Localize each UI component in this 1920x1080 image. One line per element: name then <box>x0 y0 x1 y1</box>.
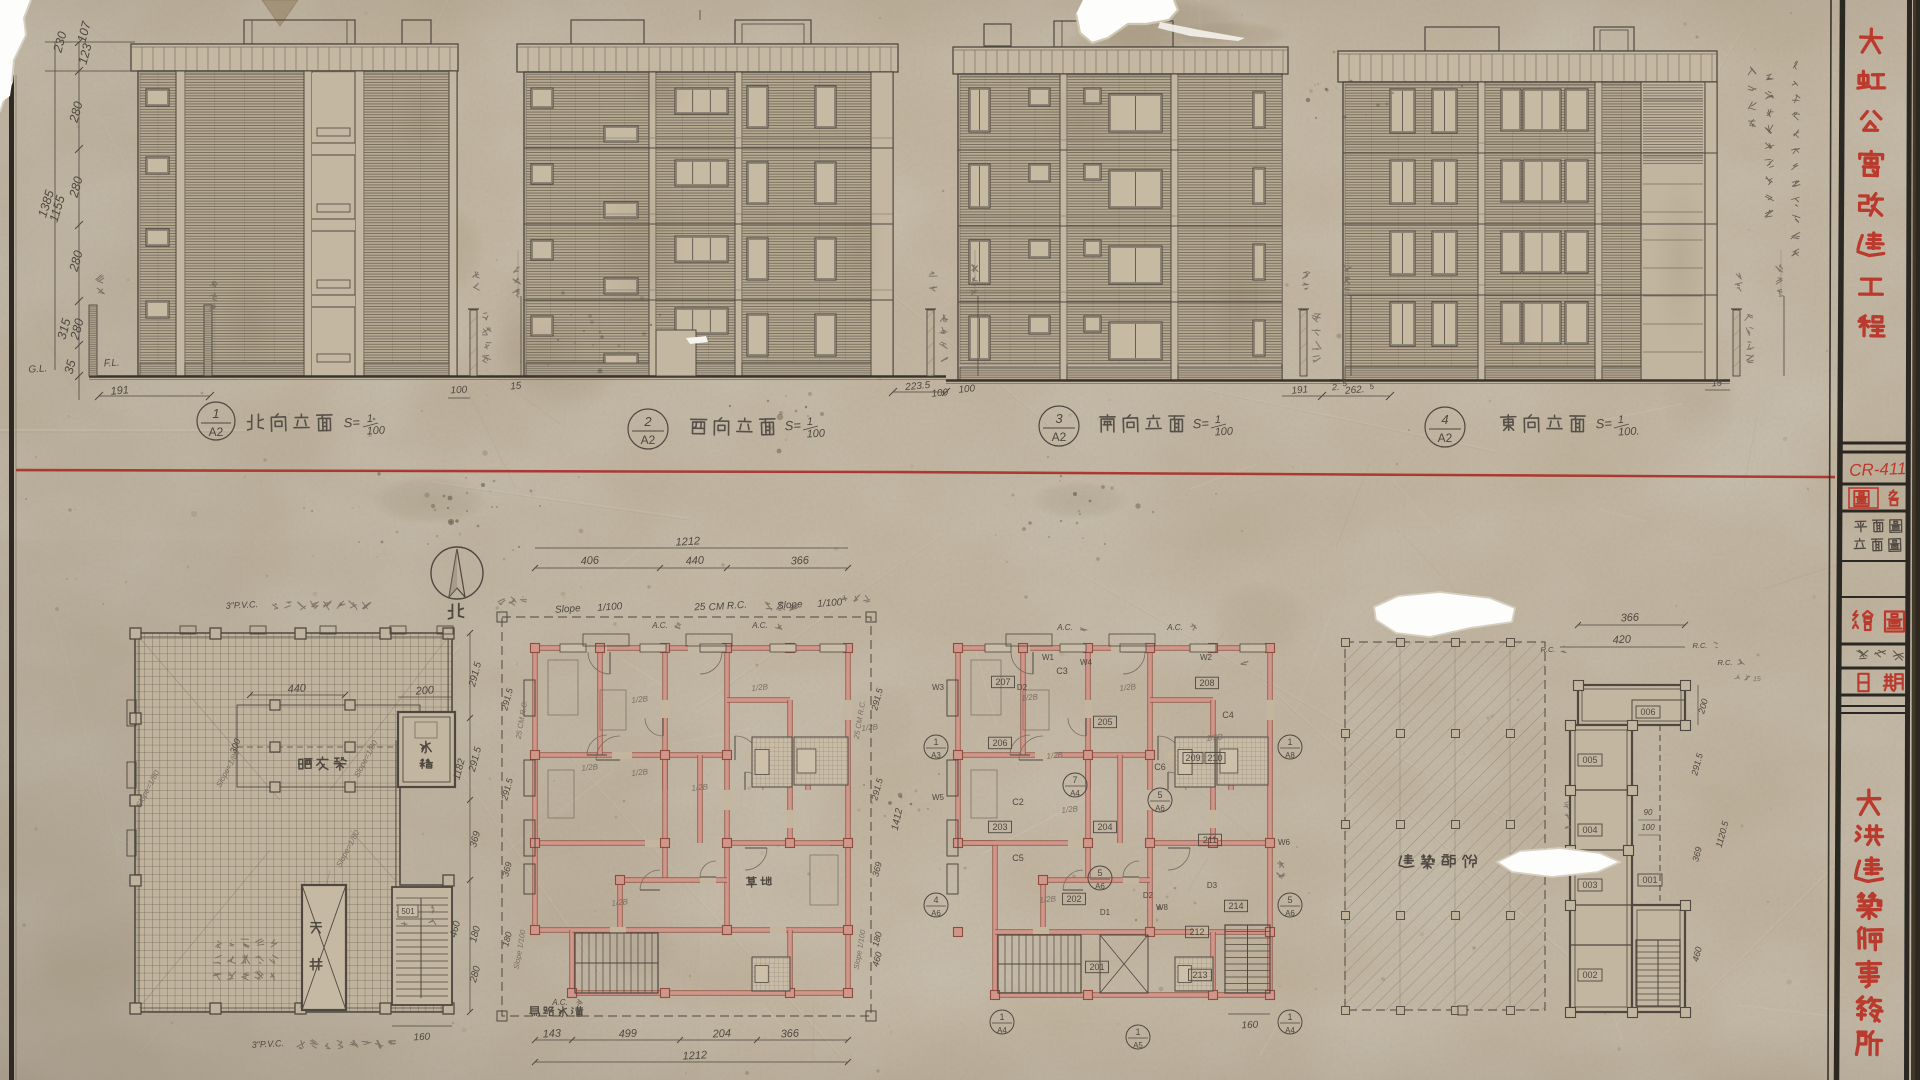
svg-text:1: 1 <box>1617 414 1624 426</box>
svg-text:200: 200 <box>414 684 435 697</box>
svg-text:203: 203 <box>992 822 1007 832</box>
svg-text:1212: 1212 <box>682 1049 707 1062</box>
svg-text:A2: A2 <box>1052 430 1067 444</box>
svg-text:W5: W5 <box>932 793 945 802</box>
svg-text:W6: W6 <box>1278 838 1291 847</box>
svg-text:A.C.: A.C. <box>551 998 568 1007</box>
svg-text:223.5: 223.5 <box>904 380 931 393</box>
svg-text:15: 15 <box>1753 676 1761 683</box>
svg-text:W2: W2 <box>1200 653 1213 662</box>
svg-text:202: 202 <box>1066 894 1081 904</box>
svg-text:A2: A2 <box>1438 431 1453 445</box>
svg-text:1: 1 <box>1287 737 1292 747</box>
svg-text:Slope: Slope <box>555 603 582 616</box>
svg-text:366: 366 <box>1620 611 1640 624</box>
svg-text:204: 204 <box>711 1028 731 1041</box>
svg-text:201: 201 <box>1089 962 1104 972</box>
svg-text:1/2B: 1/2B <box>1061 804 1079 815</box>
svg-text:004: 004 <box>1582 825 1597 835</box>
svg-text:160: 160 <box>1241 1020 1259 1032</box>
svg-text:S=: S= <box>784 418 801 434</box>
svg-text:R.C.: R.C. <box>1693 641 1708 650</box>
svg-text:143: 143 <box>542 1027 562 1040</box>
svg-text:211: 211 <box>1203 835 1217 845</box>
svg-text:006: 006 <box>1640 707 1655 717</box>
svg-text:1/2B: 1/2B <box>861 722 879 733</box>
svg-text:207: 207 <box>995 677 1010 687</box>
svg-text:C5: C5 <box>1012 853 1024 863</box>
svg-text:1: 1 <box>1214 414 1221 426</box>
svg-text:A.C.: A.C. <box>1166 623 1183 632</box>
svg-text:406: 406 <box>580 554 600 567</box>
svg-text:1212: 1212 <box>675 535 700 548</box>
svg-text:1/2B: 1/2B <box>691 782 709 793</box>
svg-text:D1: D1 <box>1100 908 1111 917</box>
svg-text:W8: W8 <box>1156 903 1169 912</box>
svg-text:100.: 100. <box>1618 425 1640 438</box>
svg-text:A.C.: A.C. <box>651 621 668 630</box>
svg-text:15: 15 <box>1711 378 1723 389</box>
svg-text:4: 4 <box>1441 412 1448 427</box>
svg-text:A6: A6 <box>1095 882 1105 891</box>
svg-text:G.L.: G.L. <box>28 363 48 375</box>
svg-text:A4: A4 <box>997 1026 1007 1035</box>
svg-text:1/2B: 1/2B <box>1119 682 1137 693</box>
svg-text:100: 100 <box>958 383 976 395</box>
svg-text:1/2B: 1/2B <box>1039 894 1057 905</box>
svg-text:A3: A3 <box>931 751 941 760</box>
svg-text:C3: C3 <box>1056 666 1068 676</box>
svg-text:1/2B: 1/2B <box>581 762 599 773</box>
svg-text:S=: S= <box>343 415 360 431</box>
svg-text:D3: D3 <box>1207 881 1218 890</box>
svg-text:1/2B: 1/2B <box>1021 692 1039 703</box>
svg-text:100: 100 <box>1214 425 1234 438</box>
svg-text:A6: A6 <box>1285 909 1295 918</box>
svg-text:S=: S= <box>1192 416 1209 432</box>
svg-text:208: 208 <box>1199 678 1214 688</box>
svg-text:R.C.: R.C. <box>1541 645 1556 654</box>
svg-text:100: 100 <box>450 385 468 397</box>
svg-text:W3: W3 <box>932 683 945 692</box>
svg-text:1: 1 <box>806 416 813 428</box>
svg-text:W4: W4 <box>1080 658 1093 667</box>
svg-text:213: 213 <box>1192 970 1207 980</box>
svg-text:D2: D2 <box>1143 891 1154 900</box>
svg-text:A.C.: A.C. <box>1056 623 1073 632</box>
svg-text:S=: S= <box>1595 416 1612 432</box>
svg-text:003: 003 <box>1582 880 1597 890</box>
svg-text:A8: A8 <box>1285 751 1295 760</box>
svg-text:100: 100 <box>931 387 949 399</box>
svg-text:002: 002 <box>1582 970 1597 980</box>
svg-text:1/2B: 1/2B <box>1206 732 1224 743</box>
svg-text:100: 100 <box>806 427 826 440</box>
svg-text:1/100: 1/100 <box>817 597 843 610</box>
svg-text:5: 5 <box>1097 868 1102 878</box>
svg-text:420: 420 <box>1612 633 1632 646</box>
svg-text:210: 210 <box>1207 753 1222 763</box>
svg-text:A4: A4 <box>1070 789 1080 798</box>
svg-text:7: 7 <box>1072 775 1077 785</box>
svg-text:209: 209 <box>1185 753 1200 763</box>
svg-text:A2: A2 <box>641 433 656 447</box>
svg-text:160: 160 <box>413 1032 431 1044</box>
svg-text:1/2B: 1/2B <box>631 767 649 778</box>
svg-text:1: 1 <box>366 413 373 425</box>
svg-text:214: 214 <box>1228 901 1243 911</box>
svg-text:191: 191 <box>1291 384 1309 396</box>
svg-text:A4: A4 <box>1285 1026 1295 1035</box>
svg-text:206: 206 <box>992 738 1007 748</box>
svg-text:440: 440 <box>287 682 307 695</box>
svg-text:1: 1 <box>212 406 219 421</box>
svg-text:100: 100 <box>1641 823 1655 832</box>
svg-text:5: 5 <box>1287 895 1292 905</box>
svg-text:D2: D2 <box>1017 683 1028 692</box>
svg-text:A2: A2 <box>209 425 224 439</box>
svg-text:1/2B: 1/2B <box>631 694 649 705</box>
svg-text:366: 366 <box>790 554 810 567</box>
svg-text:A6: A6 <box>931 909 941 918</box>
svg-text:1/2B: 1/2B <box>1046 750 1064 761</box>
svg-text:212: 212 <box>1189 927 1204 937</box>
svg-text:2.: 2. <box>1331 382 1340 393</box>
svg-text:C2: C2 <box>1012 797 1024 807</box>
svg-text:CR-411: CR-411 <box>1849 459 1907 480</box>
svg-text:R.C.: R.C. <box>1718 658 1733 667</box>
svg-text:3"P.V.C.: 3"P.V.C. <box>251 1038 284 1050</box>
svg-text:Slope: Slope <box>777 599 804 612</box>
svg-text:A5: A5 <box>1133 1041 1143 1050</box>
svg-text:2: 2 <box>643 414 652 429</box>
svg-text:1/2B: 1/2B <box>611 897 629 908</box>
svg-text:4: 4 <box>933 895 938 905</box>
svg-text:205: 205 <box>1097 717 1112 727</box>
svg-text:191: 191 <box>110 384 129 398</box>
svg-text:499: 499 <box>618 1028 637 1041</box>
svg-text:005: 005 <box>1582 755 1597 765</box>
svg-text:A6: A6 <box>1155 804 1165 813</box>
svg-text:A.C.: A.C. <box>751 621 768 630</box>
svg-text:3"P.V.C.: 3"P.V.C. <box>225 599 258 611</box>
svg-text:501: 501 <box>401 907 415 916</box>
svg-text:1: 1 <box>933 737 938 747</box>
svg-text:5: 5 <box>1157 790 1162 800</box>
svg-text:1: 1 <box>1287 1012 1292 1022</box>
svg-text:W1: W1 <box>1042 653 1055 662</box>
svg-text:100: 100 <box>366 424 386 437</box>
svg-text:440: 440 <box>685 554 705 567</box>
svg-text:25: 25 <box>693 602 706 614</box>
svg-text:1: 1 <box>1135 1027 1140 1037</box>
svg-text:366: 366 <box>780 1027 800 1040</box>
svg-text:C6: C6 <box>1154 762 1166 772</box>
svg-text:204: 204 <box>1097 822 1112 832</box>
svg-text:1/2B: 1/2B <box>751 682 769 693</box>
svg-text:3: 3 <box>1055 411 1063 426</box>
svg-text:F.L.: F.L. <box>103 357 120 369</box>
svg-text:1: 1 <box>999 1012 1004 1022</box>
svg-text:90: 90 <box>1644 808 1653 817</box>
svg-text:001: 001 <box>1642 875 1657 885</box>
svg-text:C4: C4 <box>1222 710 1234 720</box>
svg-text:1/100: 1/100 <box>597 601 623 614</box>
